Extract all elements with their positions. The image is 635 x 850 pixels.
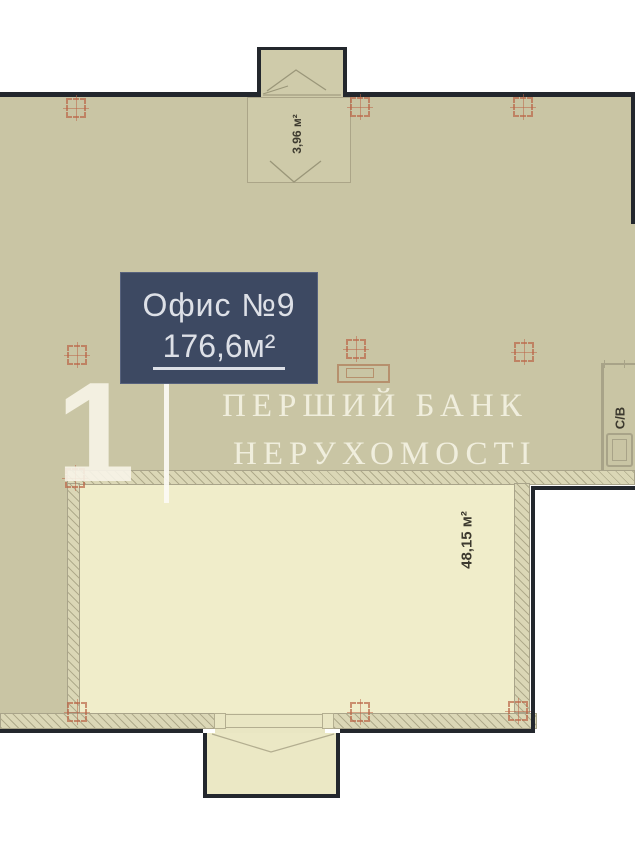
outer-wall-top-left (0, 92, 259, 97)
watermark-line1: ПЕРШИЙ БАНК (222, 388, 528, 425)
door-frame-tick (214, 713, 226, 729)
bottom-doorway (215, 713, 325, 733)
column-marker (513, 97, 533, 117)
bathroom-wall-line (601, 363, 635, 365)
threshold-line (215, 714, 325, 715)
column-marker (514, 342, 534, 362)
top-doorway-threshold (263, 94, 341, 96)
unit-label-box: Офис №9 176,6м² (120, 272, 318, 384)
outer-wall-lower-right (531, 486, 535, 733)
outer-wall-right (631, 92, 635, 224)
column-marker (67, 702, 87, 722)
bathroom-wall-line (601, 363, 604, 470)
outer-wall-wing-bottom (533, 486, 635, 490)
unit-area: 176,6м² (153, 328, 286, 370)
column-marker (508, 701, 528, 721)
floorplan-canvas: 1 ПЕРШИЙ БАНК НЕРУХОМОСТІ Офис №9 176,6м… (0, 0, 635, 850)
room-label-hall: 48,15 м² (459, 511, 476, 569)
bathroom-fixture-inner (612, 439, 627, 461)
shaft-object-inner (346, 368, 374, 378)
room-label-top-annex: 3,96 м² (290, 114, 304, 154)
outer-wall-bottom-right (340, 729, 535, 733)
column-marker (350, 702, 370, 722)
hall-room-interior (80, 485, 514, 713)
bottom-balcony (203, 733, 340, 798)
column-marker (346, 339, 366, 359)
top-balcony (257, 47, 347, 97)
door-frame-tick (322, 713, 334, 729)
wall-hall-right (514, 483, 530, 713)
unit-title: Офис №9 (142, 287, 295, 324)
label-leader-line (164, 384, 169, 503)
wall-bottom-left (0, 713, 215, 729)
outer-wall-bottom-left (0, 729, 203, 733)
threshold-line (215, 727, 325, 728)
column-marker (66, 98, 86, 118)
outer-wall-top-right (344, 92, 635, 97)
watermark-line2: НЕРУХОМОСТІ (233, 436, 537, 473)
column-marker (350, 97, 370, 117)
wall-hall-left (67, 483, 80, 713)
bathroom-door-tick (604, 360, 605, 368)
bathroom-door-tick (624, 360, 625, 368)
room-label-bathroom: С/В (613, 407, 628, 429)
